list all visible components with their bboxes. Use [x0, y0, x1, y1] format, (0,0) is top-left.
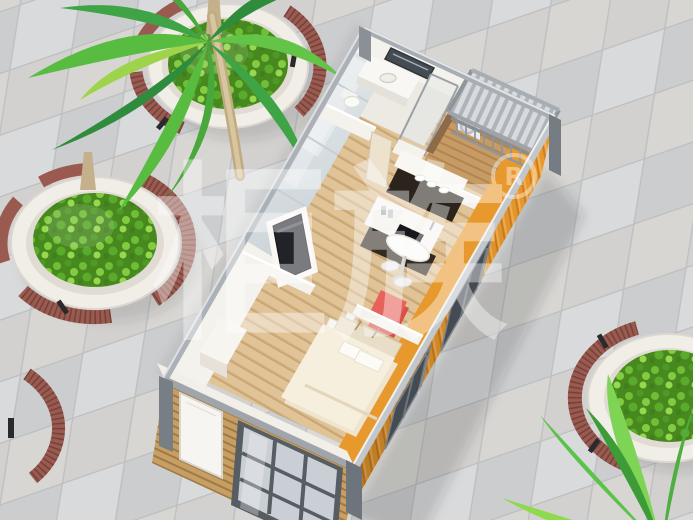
corner-post	[159, 376, 173, 452]
toilet	[344, 97, 360, 108]
render-canvas: 柜族 R	[0, 0, 693, 520]
bush-highlight	[46, 204, 114, 248]
sink	[380, 74, 396, 83]
corner-post	[359, 26, 371, 62]
watermark-brand-text: 柜族	[152, 146, 508, 367]
corner-post	[549, 114, 561, 176]
corner-post	[346, 460, 362, 520]
registered-letter: R	[504, 162, 523, 191]
watermark: 柜族 R	[152, 146, 535, 367]
container-house-render: 柜族 R	[0, 0, 693, 520]
bench-leg	[8, 418, 14, 438]
